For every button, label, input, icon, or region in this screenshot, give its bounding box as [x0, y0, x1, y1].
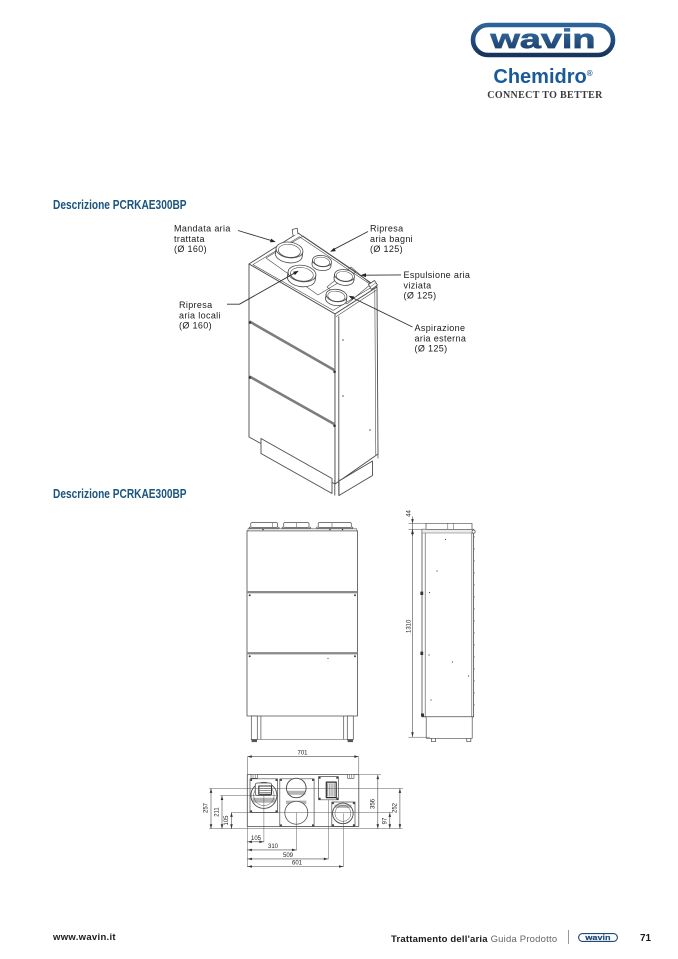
svg-text:97: 97	[382, 817, 388, 824]
svg-text:wavin: wavin	[489, 23, 595, 53]
svg-text:aria bagni: aria bagni	[370, 234, 413, 244]
svg-text:Aspirazione: Aspirazione	[415, 323, 466, 333]
svg-text:(Ø 160): (Ø 160)	[179, 321, 212, 331]
svg-text:wavin: wavin	[584, 934, 610, 942]
svg-text:509: 509	[283, 853, 294, 859]
svg-text:(Ø 125): (Ø 125)	[415, 344, 448, 354]
svg-text:257: 257	[204, 802, 210, 813]
svg-text:viziata: viziata	[404, 280, 432, 290]
svg-text:252: 252	[393, 802, 399, 813]
svg-text:44: 44	[407, 510, 413, 517]
svg-text:Ripresa: Ripresa	[179, 300, 212, 310]
svg-text:aria locali: aria locali	[179, 311, 221, 321]
svg-text:310: 310	[268, 844, 279, 850]
svg-text:Ripresa: Ripresa	[370, 224, 403, 234]
svg-text:(Ø 125): (Ø 125)	[404, 291, 437, 301]
svg-text:1310: 1310	[407, 619, 413, 633]
svg-text:701: 701	[298, 750, 309, 756]
svg-text:356: 356	[370, 798, 376, 809]
svg-text:Espulsione aria: Espulsione aria	[404, 270, 471, 280]
svg-text:601: 601	[292, 861, 303, 867]
svg-text:105: 105	[224, 815, 230, 826]
svg-text:105: 105	[251, 836, 262, 842]
svg-text:aria esterna: aria esterna	[415, 333, 467, 343]
svg-text:Mandata aria: Mandata aria	[174, 224, 231, 234]
svg-text:(Ø 160): (Ø 160)	[174, 244, 207, 254]
svg-text:trattata: trattata	[174, 234, 205, 244]
svg-text:211: 211	[215, 807, 221, 817]
svg-text:(Ø 125): (Ø 125)	[370, 244, 403, 254]
